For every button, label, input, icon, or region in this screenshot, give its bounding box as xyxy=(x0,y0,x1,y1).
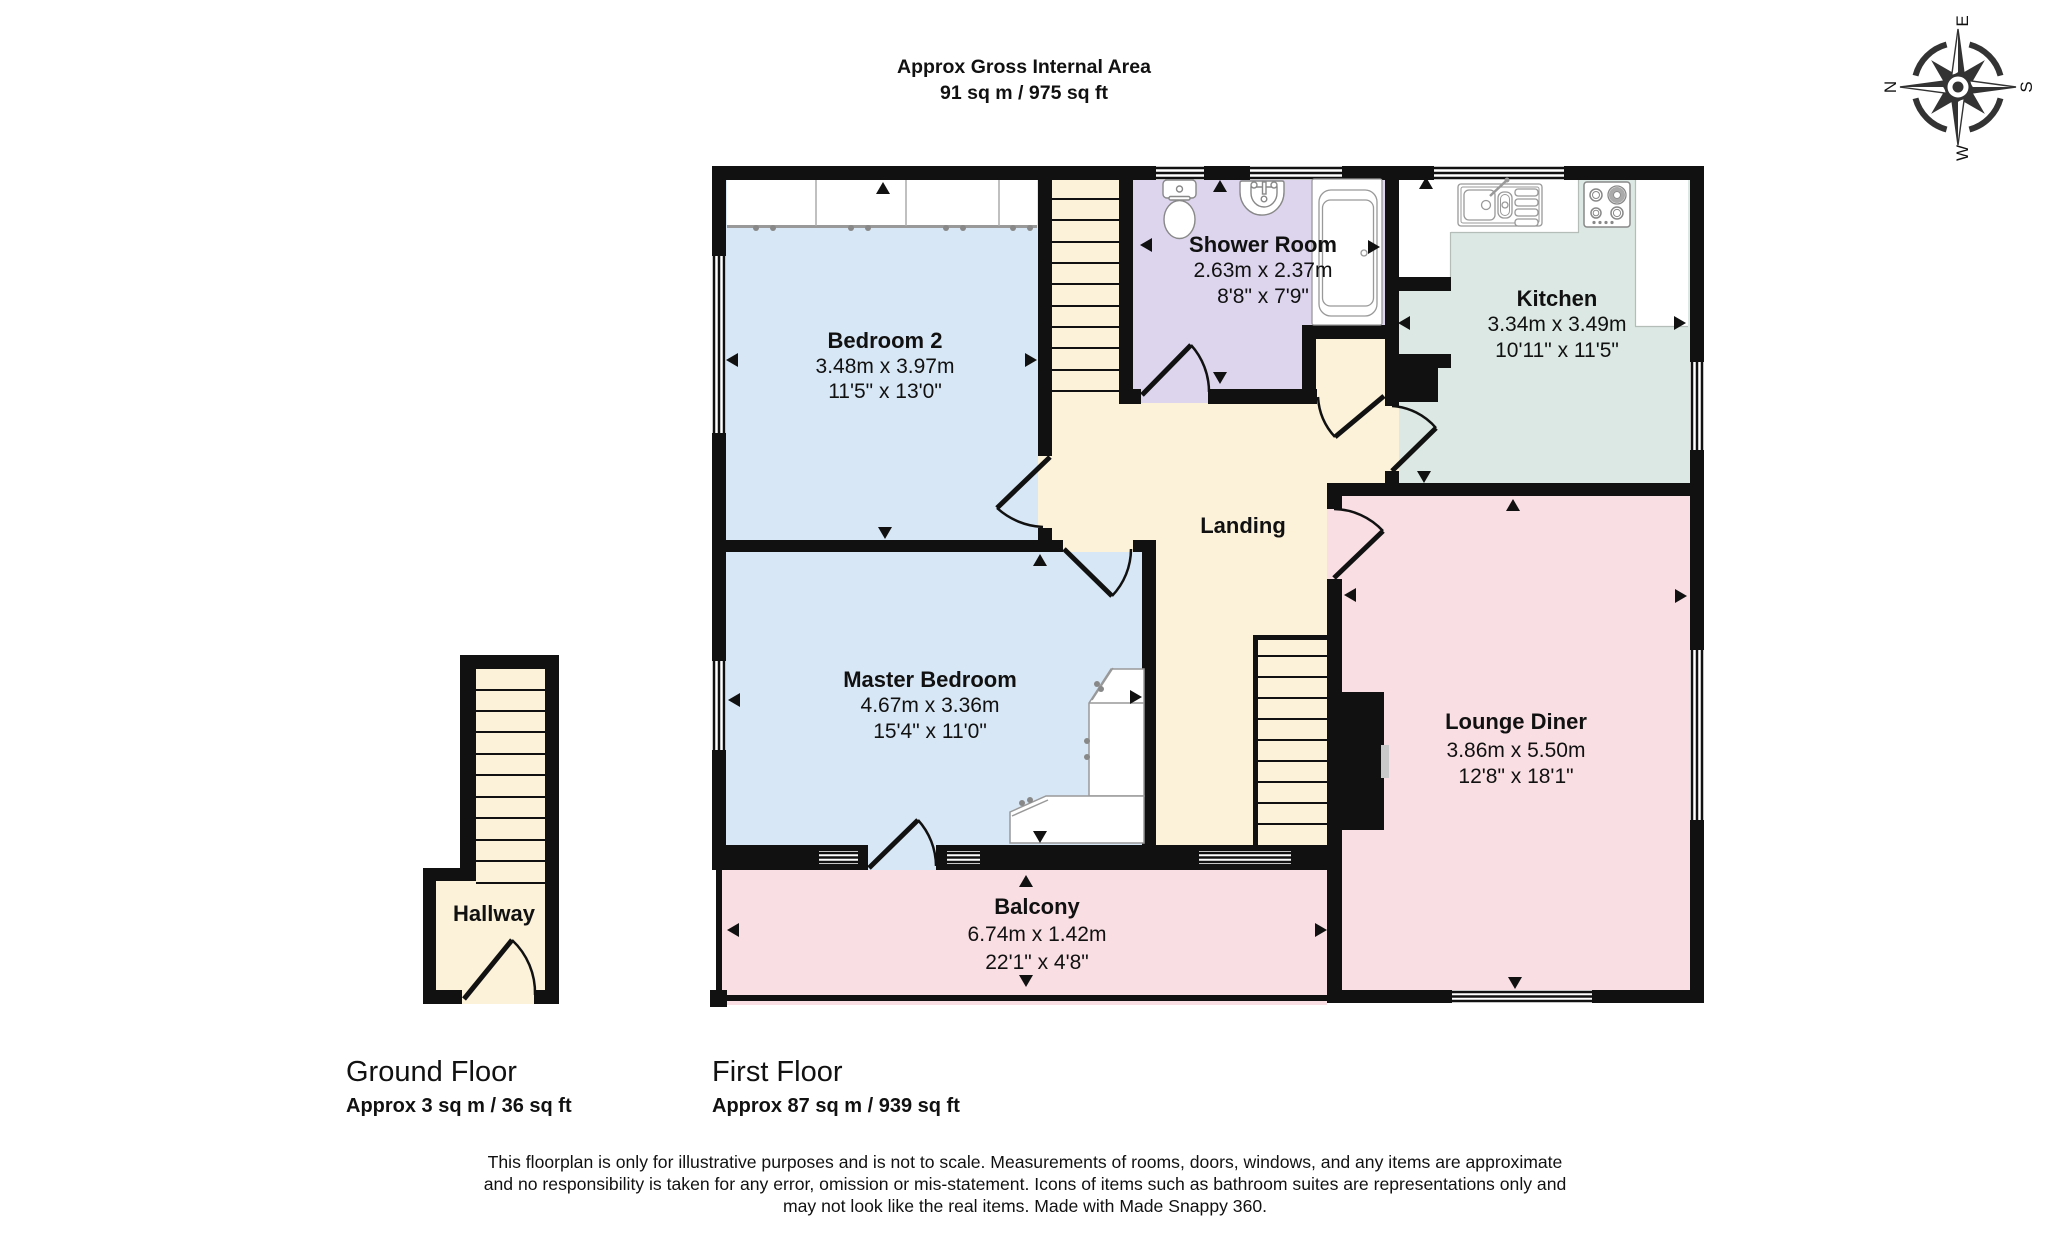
svg-text:Shower Room: Shower Room xyxy=(1189,232,1337,257)
svg-text:N: N xyxy=(1881,81,1900,93)
svg-text:8'8" x 7'9": 8'8" x 7'9" xyxy=(1217,285,1309,308)
svg-text:4.67m x 3.36m: 4.67m x 3.36m xyxy=(861,694,1000,717)
svg-text:This floorplan is only for ill: This floorplan is only for illustrative … xyxy=(488,1152,1563,1172)
svg-text:15'4" x 11'0": 15'4" x 11'0" xyxy=(873,720,987,743)
svg-text:Balcony: Balcony xyxy=(994,894,1080,919)
svg-text:Ground Floor: Ground Floor xyxy=(346,1056,517,1088)
svg-text:2.63m x 2.37m: 2.63m x 2.37m xyxy=(1194,259,1333,282)
svg-text:3.48m x 3.97m: 3.48m x 3.97m xyxy=(816,355,955,378)
svg-text:E: E xyxy=(1953,15,1972,26)
svg-text:and no responsibility is taken: and no responsibility is taken for any e… xyxy=(484,1174,1567,1194)
svg-text:91 sq m / 975 sq ft: 91 sq m / 975 sq ft xyxy=(940,82,1108,104)
svg-text:Landing: Landing xyxy=(1200,513,1286,538)
svg-text:6.74m x 1.42m: 6.74m x 1.42m xyxy=(968,923,1107,946)
svg-text:Kitchen: Kitchen xyxy=(1517,286,1598,311)
svg-text:3.34m x 3.49m: 3.34m x 3.49m xyxy=(1488,313,1627,336)
svg-text:First Floor: First Floor xyxy=(712,1056,843,1088)
svg-text:3.86m x 5.50m: 3.86m x 5.50m xyxy=(1447,739,1586,762)
svg-text:Lounge Diner: Lounge Diner xyxy=(1445,709,1587,734)
svg-text:12'8" x 18'1": 12'8" x 18'1" xyxy=(1458,765,1573,788)
svg-text:Hallway: Hallway xyxy=(453,901,536,926)
svg-text:W: W xyxy=(1953,145,1972,161)
svg-text:Master Bedroom: Master Bedroom xyxy=(843,667,1017,692)
svg-text:Approx 87 sq m / 939 sq ft: Approx 87 sq m / 939 sq ft xyxy=(712,1095,960,1117)
svg-text:may not look like the real ite: may not look like the real items. Made w… xyxy=(783,1196,1267,1216)
svg-text:Approx 3 sq m / 36 sq ft: Approx 3 sq m / 36 sq ft xyxy=(346,1095,572,1117)
svg-text:Approx Gross Internal Area: Approx Gross Internal Area xyxy=(897,56,1151,78)
svg-text:10'11" x 11'5": 10'11" x 11'5" xyxy=(1495,339,1619,362)
svg-text:22'1" x 4'8": 22'1" x 4'8" xyxy=(985,951,1089,974)
svg-text:11'5" x 13'0": 11'5" x 13'0" xyxy=(828,380,942,403)
svg-text:S: S xyxy=(2017,81,2036,92)
svg-text:Bedroom 2: Bedroom 2 xyxy=(828,328,943,353)
